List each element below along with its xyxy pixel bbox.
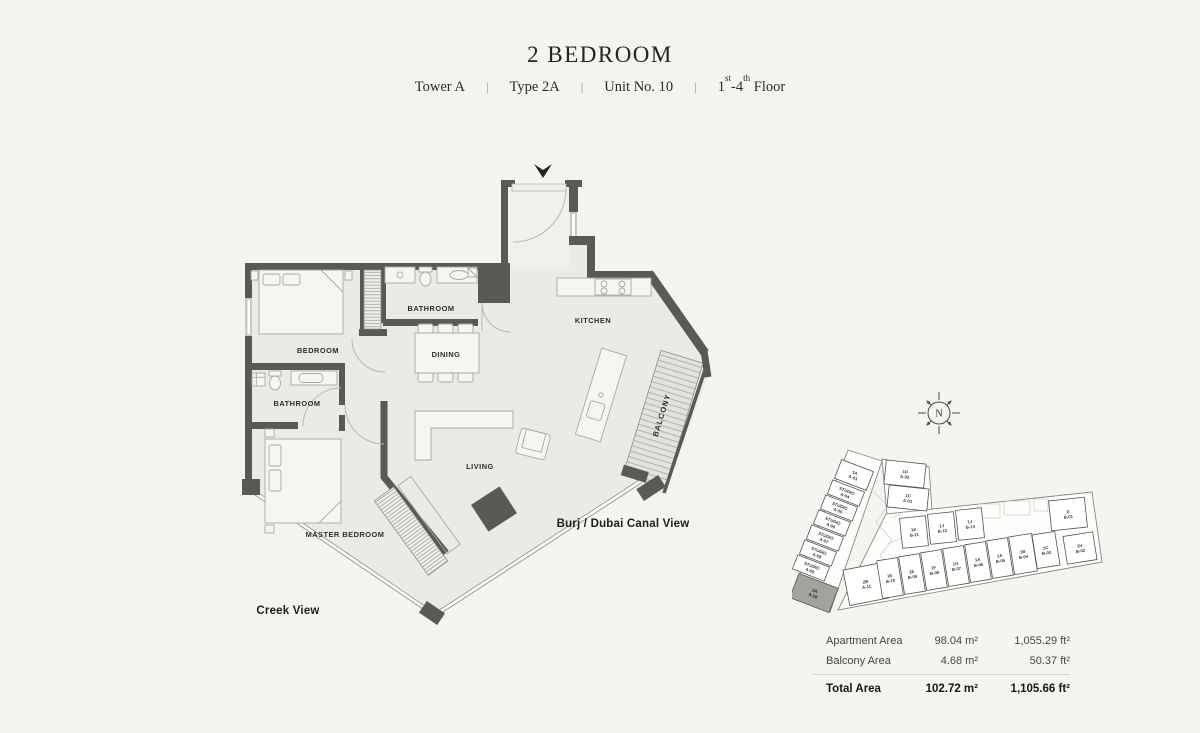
label-dining: DINING [432,350,461,359]
header: 2 BEDROOM Tower A | Type 2A | Unit No. 1… [0,0,1200,96]
row-value-m2: 102.72 m² [906,683,978,695]
keyplan-unit-B-13: 1JB-13 [956,508,985,541]
table-row-apartment-area: Apartment Area 98.04 m² 1,055.29 ft² [812,631,1070,651]
area-table: Apartment Area 98.04 m² 1,055.29 ft² Bal… [812,631,1070,700]
subtitle-unit: Unit No. 10 [604,79,673,96]
brochure-page: 2 BEDROOM Tower A | Type 2A | Unit No. 1… [0,0,1200,733]
compass-icon: N [910,384,968,442]
floorplan: BEDROOM BATHROOM DINING KITCHEN BATHROOM… [235,163,715,629]
row-value-m2: 98.04 m² [906,635,978,647]
label-master-bedroom: MASTER BEDROOM [306,530,385,539]
subtitle-separator: | [694,79,697,95]
label-canal-view: Burj / Dubai Canal View [557,518,690,530]
label-bathroom-2: BATHROOM [274,399,321,408]
keyplan-unit-A-01: 1CA-01 [887,485,929,511]
row-label: Apartment Area [812,635,906,647]
keyplan-unit-B-11: 1KB-11 [900,516,929,549]
label-bathroom-1: BATHROOM [408,304,455,313]
keyplan-unit-B-03: 1CB-03 [1032,531,1060,568]
table-row-total-area: Total Area 102.72 m² 1,105.66 ft² [812,674,1070,700]
label-living: LIVING [466,462,494,471]
keyplan-unit-B-01: 1IB-01 [1049,497,1088,531]
keyplan-unit-B-02: 1HB-02 [1063,532,1097,564]
label-bedroom: BEDROOM [297,346,339,355]
row-label: Balcony Area [812,655,906,667]
subtitle-type: Type 2A [510,79,560,96]
keyplan-unit-A-02: 1DA-02 [884,460,926,488]
entrance-arrow-icon [534,164,552,178]
subtitle-floor: 1st-4th Floor [718,77,785,96]
compass-north-label: N [935,409,942,420]
row-value-ft2: 1,105.66 ft² [978,683,1070,695]
entrance-corridor-floor [508,187,569,269]
row-value-ft2: 50.37 ft² [978,655,1070,667]
page-title: 2 BEDROOM [0,42,1200,68]
label-creek-view: Creek View [256,605,319,617]
keyplan: 1AA-03STUDIOA-04STUDIOA-05STUDIOA-06STUD… [792,448,1108,628]
subtitle-tower: Tower A [415,79,465,96]
wardrobe-bedroom [364,270,381,329]
table-row-balcony-area: Balcony Area 4.68 m² 50.37 ft² [812,651,1070,671]
subtitle-separator: | [486,79,489,95]
subtitle: Tower A | Type 2A | Unit No. 10 | 1st-4t… [0,77,1200,96]
subtitle-separator: | [581,79,584,95]
keyplan-unit-B-12: 1JB-12 [928,512,957,545]
row-value-m2: 4.68 m² [906,655,978,667]
row-label: Total Area [812,683,906,695]
row-value-ft2: 1,055.29 ft² [978,635,1070,647]
label-kitchen: KITCHEN [575,316,611,325]
